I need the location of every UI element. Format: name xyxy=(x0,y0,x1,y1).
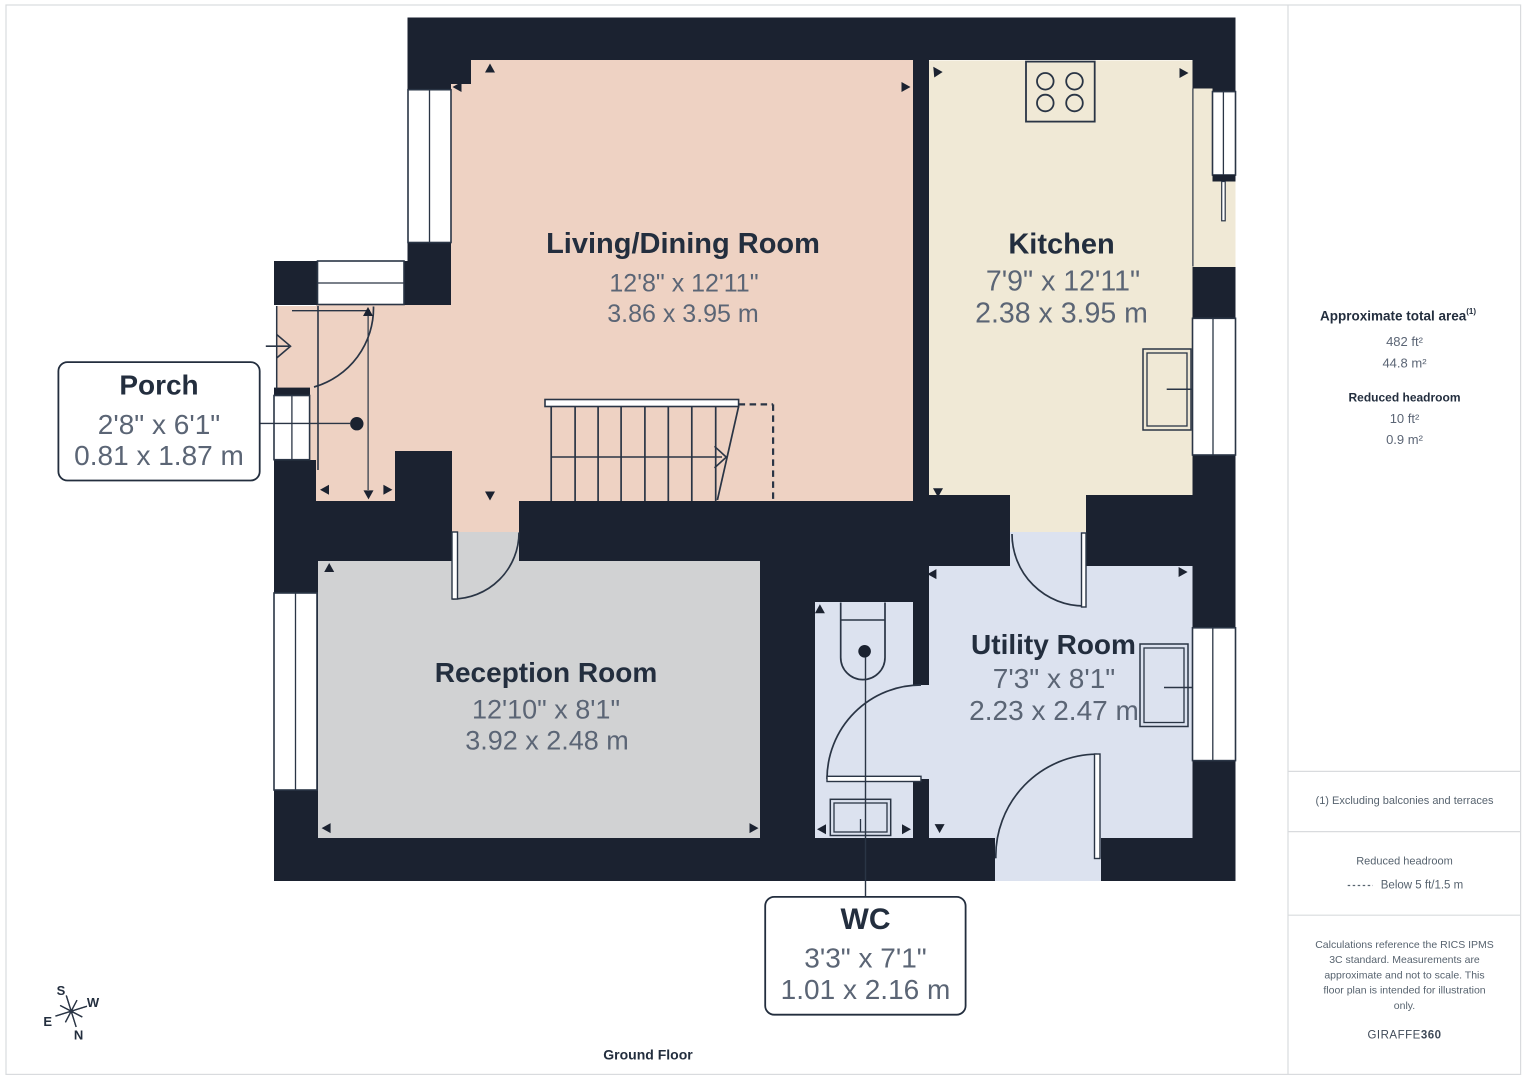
svg-text:Ground Floor: Ground Floor xyxy=(603,1047,693,1063)
svg-text:Living/Dining Room: Living/Dining Room xyxy=(546,228,820,260)
svg-text:2.23 x 2.47 m: 2.23 x 2.47 m xyxy=(969,695,1139,726)
svg-text:2'8" x 6'1": 2'8" x 6'1" xyxy=(98,409,220,440)
svg-text:Kitchen: Kitchen xyxy=(1008,229,1114,261)
svg-text:12'10" x 8'1": 12'10" x 8'1" xyxy=(472,695,620,725)
svg-text:Reception Room: Reception Room xyxy=(435,657,657,688)
svg-text:Porch: Porch xyxy=(119,370,198,401)
svg-text:10 ft²: 10 ft² xyxy=(1390,411,1420,426)
svg-text:12'8" x 12'11": 12'8" x 12'11" xyxy=(609,270,758,298)
svg-text:N: N xyxy=(74,1027,83,1042)
svg-text:Calculations reference the RIC: Calculations reference the RICS IPMS xyxy=(1315,939,1494,951)
svg-text:W: W xyxy=(87,995,100,1010)
svg-text:Utility Room: Utility Room xyxy=(971,629,1136,660)
svg-text:1.01 x 2.16 m: 1.01 x 2.16 m xyxy=(781,974,951,1005)
svg-text:7'3" x 8'1": 7'3" x 8'1" xyxy=(993,663,1115,694)
svg-text:Approximate total area(1): Approximate total area(1) xyxy=(1320,307,1476,324)
svg-text:approximate and not to scale.: approximate and not to scale. This xyxy=(1324,969,1484,981)
svg-text:(1) Excluding balconies and te: (1) Excluding balconies and terraces xyxy=(1316,795,1494,807)
svg-text:Reduced headroom: Reduced headroom xyxy=(1348,391,1460,405)
svg-text:7'9" x 12'11": 7'9" x 12'11" xyxy=(986,266,1140,298)
svg-text:44.8 m²: 44.8 m² xyxy=(1382,356,1427,371)
svg-text:E: E xyxy=(43,1014,52,1029)
svg-text:GIRAFFE360: GIRAFFE360 xyxy=(1367,1029,1441,1041)
svg-text:floor plan is intended for ill: floor plan is intended for illustration xyxy=(1323,985,1485,997)
svg-text:S: S xyxy=(57,983,66,998)
svg-text:3C standard. Measurements are: 3C standard. Measurements are xyxy=(1329,954,1480,966)
svg-text:WC: WC xyxy=(841,903,891,936)
svg-text:3.92 x 2.48 m: 3.92 x 2.48 m xyxy=(465,726,629,756)
svg-text:482 ft²: 482 ft² xyxy=(1386,334,1424,349)
svg-text:Reduced headroom: Reduced headroom xyxy=(1356,856,1453,868)
svg-text:3.86 x 3.95 m: 3.86 x 3.95 m xyxy=(607,300,758,328)
svg-text:0.9 m²: 0.9 m² xyxy=(1386,432,1424,447)
svg-text:only.: only. xyxy=(1394,1000,1415,1012)
svg-text:3'3" x 7'1": 3'3" x 7'1" xyxy=(804,943,926,974)
svg-text:2.38 x 3.95 m: 2.38 x 3.95 m xyxy=(975,298,1148,330)
svg-text:Below 5 ft/1.5 m: Below 5 ft/1.5 m xyxy=(1381,880,1463,892)
svg-text:0.81 x 1.87 m: 0.81 x 1.87 m xyxy=(74,440,244,471)
